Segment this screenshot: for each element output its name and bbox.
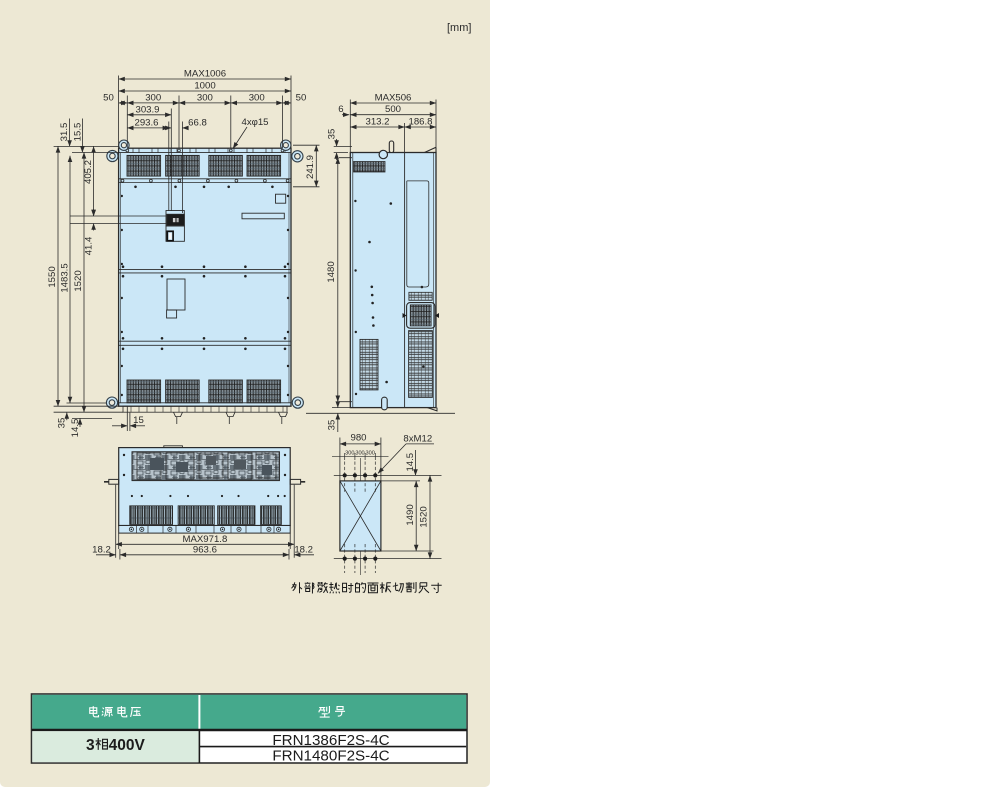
svg-text:35: 35 (327, 129, 338, 140)
svg-text:303.9: 303.9 (135, 105, 159, 116)
svg-text:963.6: 963.6 (193, 544, 217, 555)
svg-text:405.2: 405.2 (83, 160, 94, 184)
svg-text:3: 3 (86, 737, 95, 754)
svg-text:1550: 1550 (47, 266, 58, 287)
svg-text:300: 300 (249, 93, 265, 104)
svg-text:313.2: 313.2 (365, 116, 389, 127)
svg-text:1480: 1480 (326, 261, 337, 282)
svg-text:1483.5: 1483.5 (60, 263, 71, 292)
svg-text:18.2: 18.2 (294, 544, 313, 555)
svg-text:400V: 400V (109, 737, 146, 754)
svg-text:18.2: 18.2 (92, 544, 111, 555)
svg-text:1490: 1490 (405, 504, 416, 525)
svg-text:FRN1386F2S-4C: FRN1386F2S-4C (272, 732, 389, 749)
svg-text:14.5: 14.5 (70, 419, 81, 438)
svg-text:35: 35 (57, 418, 68, 429)
svg-text:293.6: 293.6 (134, 118, 158, 129)
svg-text:31.5: 31.5 (59, 123, 70, 142)
svg-text:14.5: 14.5 (405, 453, 416, 472)
svg-text:241.9: 241.9 (305, 155, 316, 179)
svg-text:1520: 1520 (73, 270, 84, 291)
svg-text:300: 300 (355, 450, 364, 456)
svg-text:6: 6 (338, 104, 343, 115)
svg-text:300: 300 (197, 93, 213, 104)
svg-text:MAX506: MAX506 (375, 93, 412, 104)
svg-text:50: 50 (296, 93, 307, 104)
svg-text:500: 500 (385, 104, 401, 115)
svg-text:66.8: 66.8 (188, 118, 207, 129)
svg-text:4xφ15: 4xφ15 (241, 117, 268, 128)
svg-text:1000: 1000 (194, 81, 215, 92)
svg-text:1520: 1520 (419, 506, 430, 527)
svg-text:8xM12: 8xM12 (403, 434, 432, 445)
svg-text:300: 300 (145, 93, 161, 104)
svg-text:300: 300 (366, 450, 375, 456)
svg-text:41.4: 41.4 (84, 236, 95, 255)
svg-text:MAX1006: MAX1006 (184, 69, 226, 80)
svg-text:[mm]: [mm] (447, 22, 471, 34)
svg-text:300: 300 (345, 450, 354, 456)
svg-text:FRN1480F2S-4C: FRN1480F2S-4C (272, 748, 389, 765)
svg-text:15.5: 15.5 (73, 123, 84, 142)
svg-text:MAX971.8: MAX971.8 (182, 534, 227, 545)
svg-text:980: 980 (350, 433, 366, 444)
svg-text:186.8: 186.8 (408, 116, 432, 127)
svg-text:15: 15 (133, 415, 144, 426)
svg-text:50: 50 (103, 93, 114, 104)
svg-text:35: 35 (326, 420, 337, 431)
